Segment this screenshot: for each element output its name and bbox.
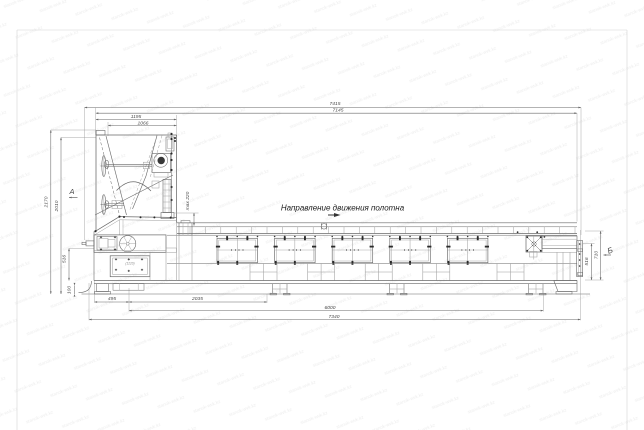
svg-text:7145: 7145	[333, 108, 344, 114]
svg-text:1066: 1066	[138, 120, 149, 126]
svg-text:2170: 2170	[44, 196, 50, 208]
svg-text:Направление движения полотна: Направление движения полотна	[281, 204, 405, 213]
svg-text:7340: 7340	[329, 314, 340, 320]
svg-text:1195: 1195	[131, 114, 142, 120]
svg-text:100: 100	[67, 286, 73, 294]
svg-text:(1220): (1220)	[125, 262, 134, 266]
svg-text:6000: 6000	[325, 305, 336, 311]
svg-text:495: 495	[108, 296, 116, 302]
svg-text:7415: 7415	[330, 101, 341, 107]
svg-text:516: 516	[62, 255, 68, 263]
svg-text:710: 710	[594, 251, 600, 259]
svg-text:516: 516	[584, 257, 590, 265]
svg-text:max 220: max 220	[185, 191, 191, 210]
svg-text:2035: 2035	[191, 296, 203, 302]
svg-text:2010: 2010	[54, 200, 60, 212]
svg-text:A: A	[68, 187, 74, 196]
